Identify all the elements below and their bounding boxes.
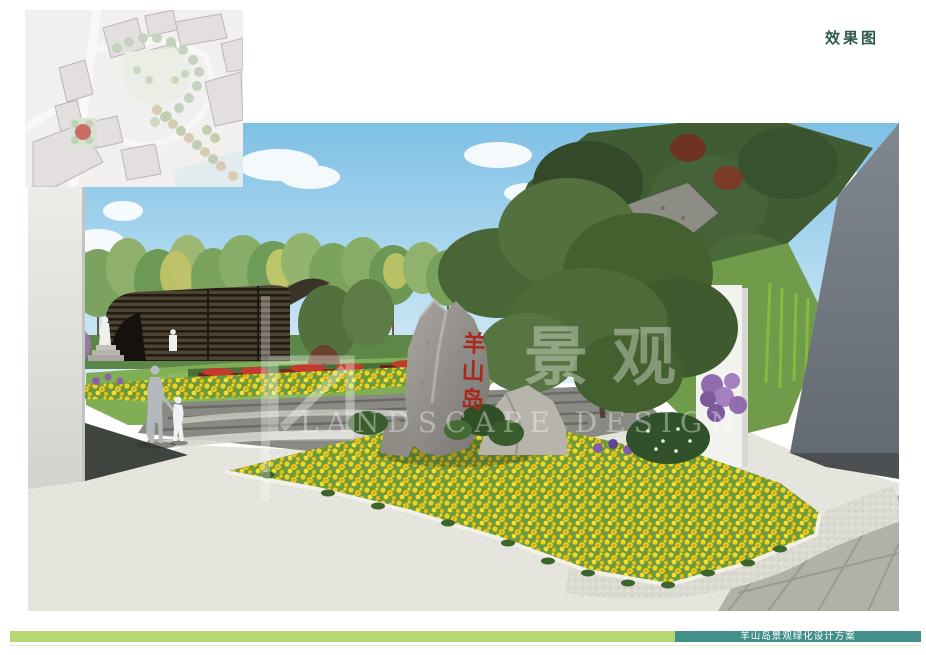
map-wash <box>25 10 243 187</box>
watermark-text-cn: 景观 <box>524 306 700 398</box>
project-title: 羊山岛景观绿化设计方案 <box>740 631 856 642</box>
statue-figure <box>102 317 109 324</box>
site-plan-inset <box>25 10 243 187</box>
footer-bar-teal: 羊山岛景观绿化设计方案 <box>675 631 921 642</box>
footer-bar-green <box>10 631 675 642</box>
watermark-logo <box>258 296 368 511</box>
sheet-title: 效果图 <box>825 27 879 48</box>
footer-underline <box>10 645 921 646</box>
red-tree <box>670 134 706 162</box>
watermark-text-en: LANDSCAPE DESIGN <box>300 406 743 439</box>
small-figure <box>170 329 176 335</box>
